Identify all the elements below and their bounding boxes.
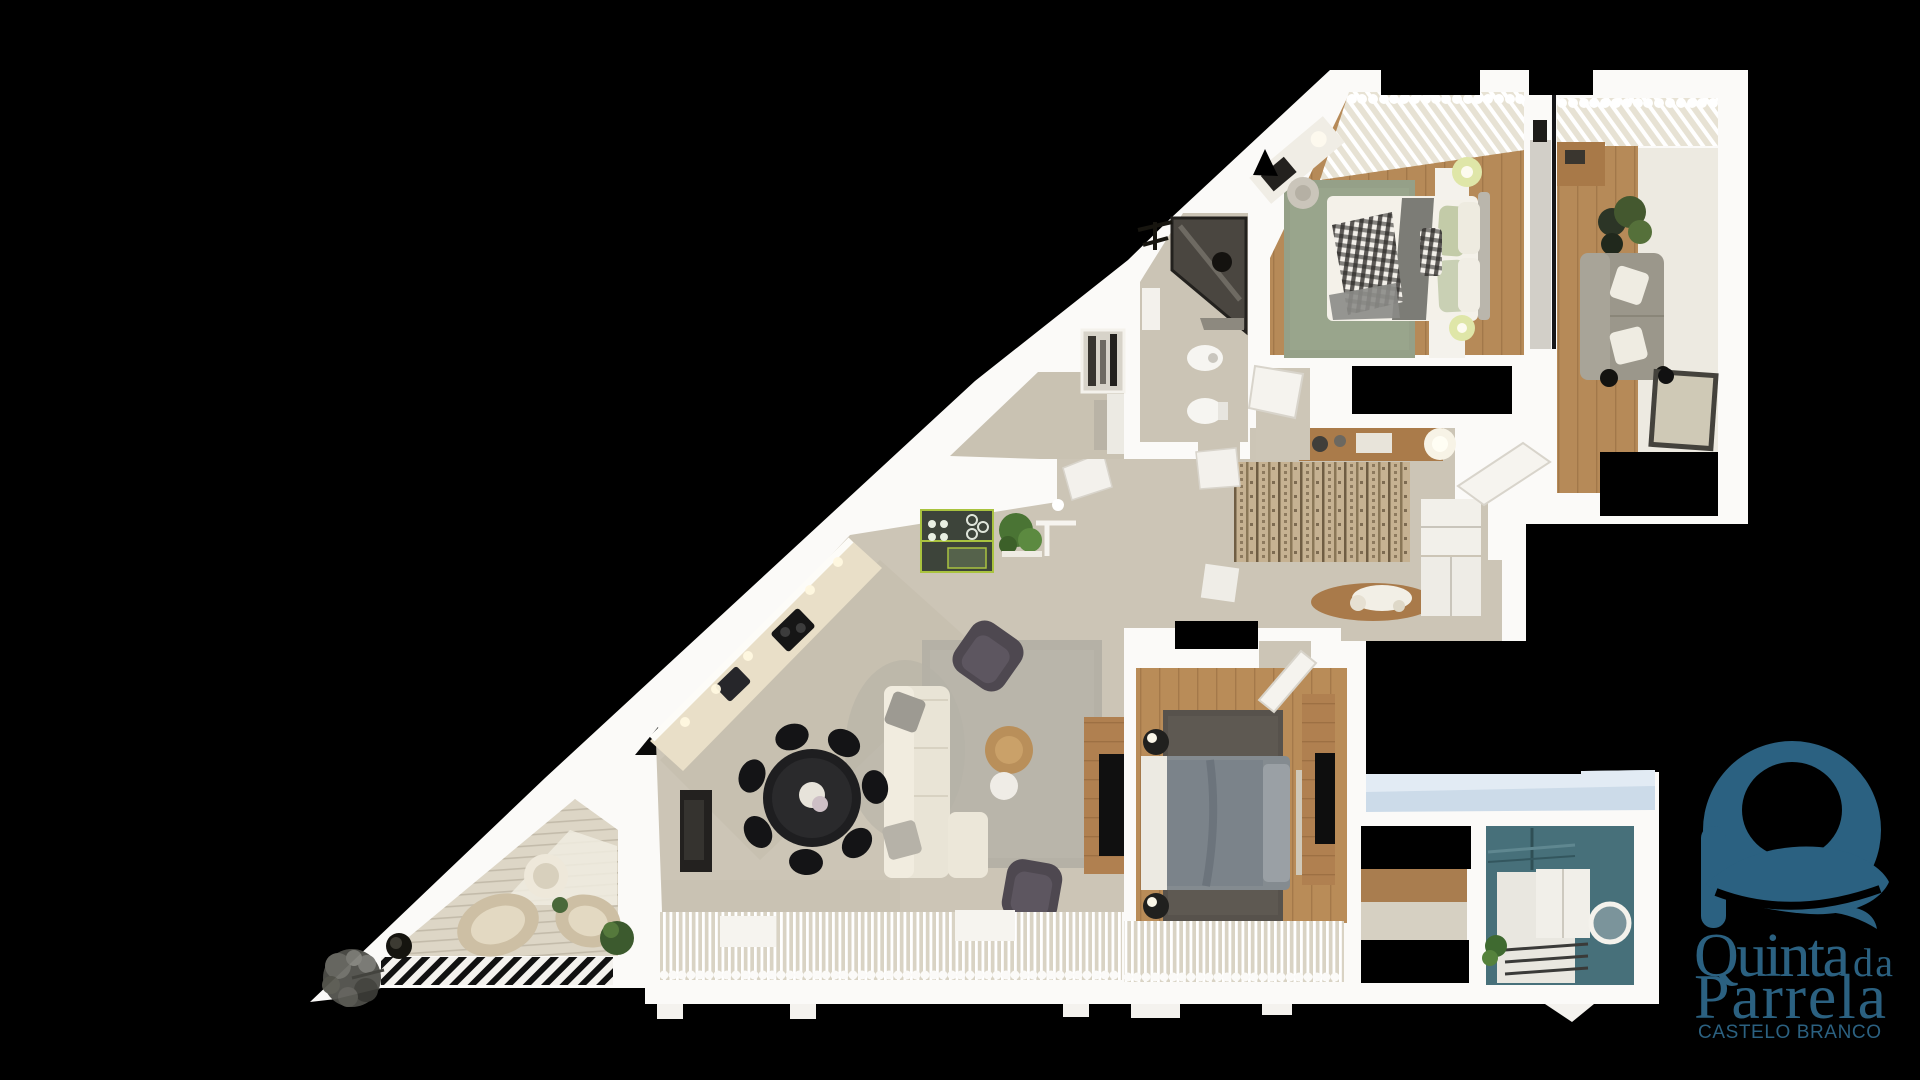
svg-text:CASTELO BRANCO: CASTELO BRANCO <box>1698 1022 1884 1043</box>
